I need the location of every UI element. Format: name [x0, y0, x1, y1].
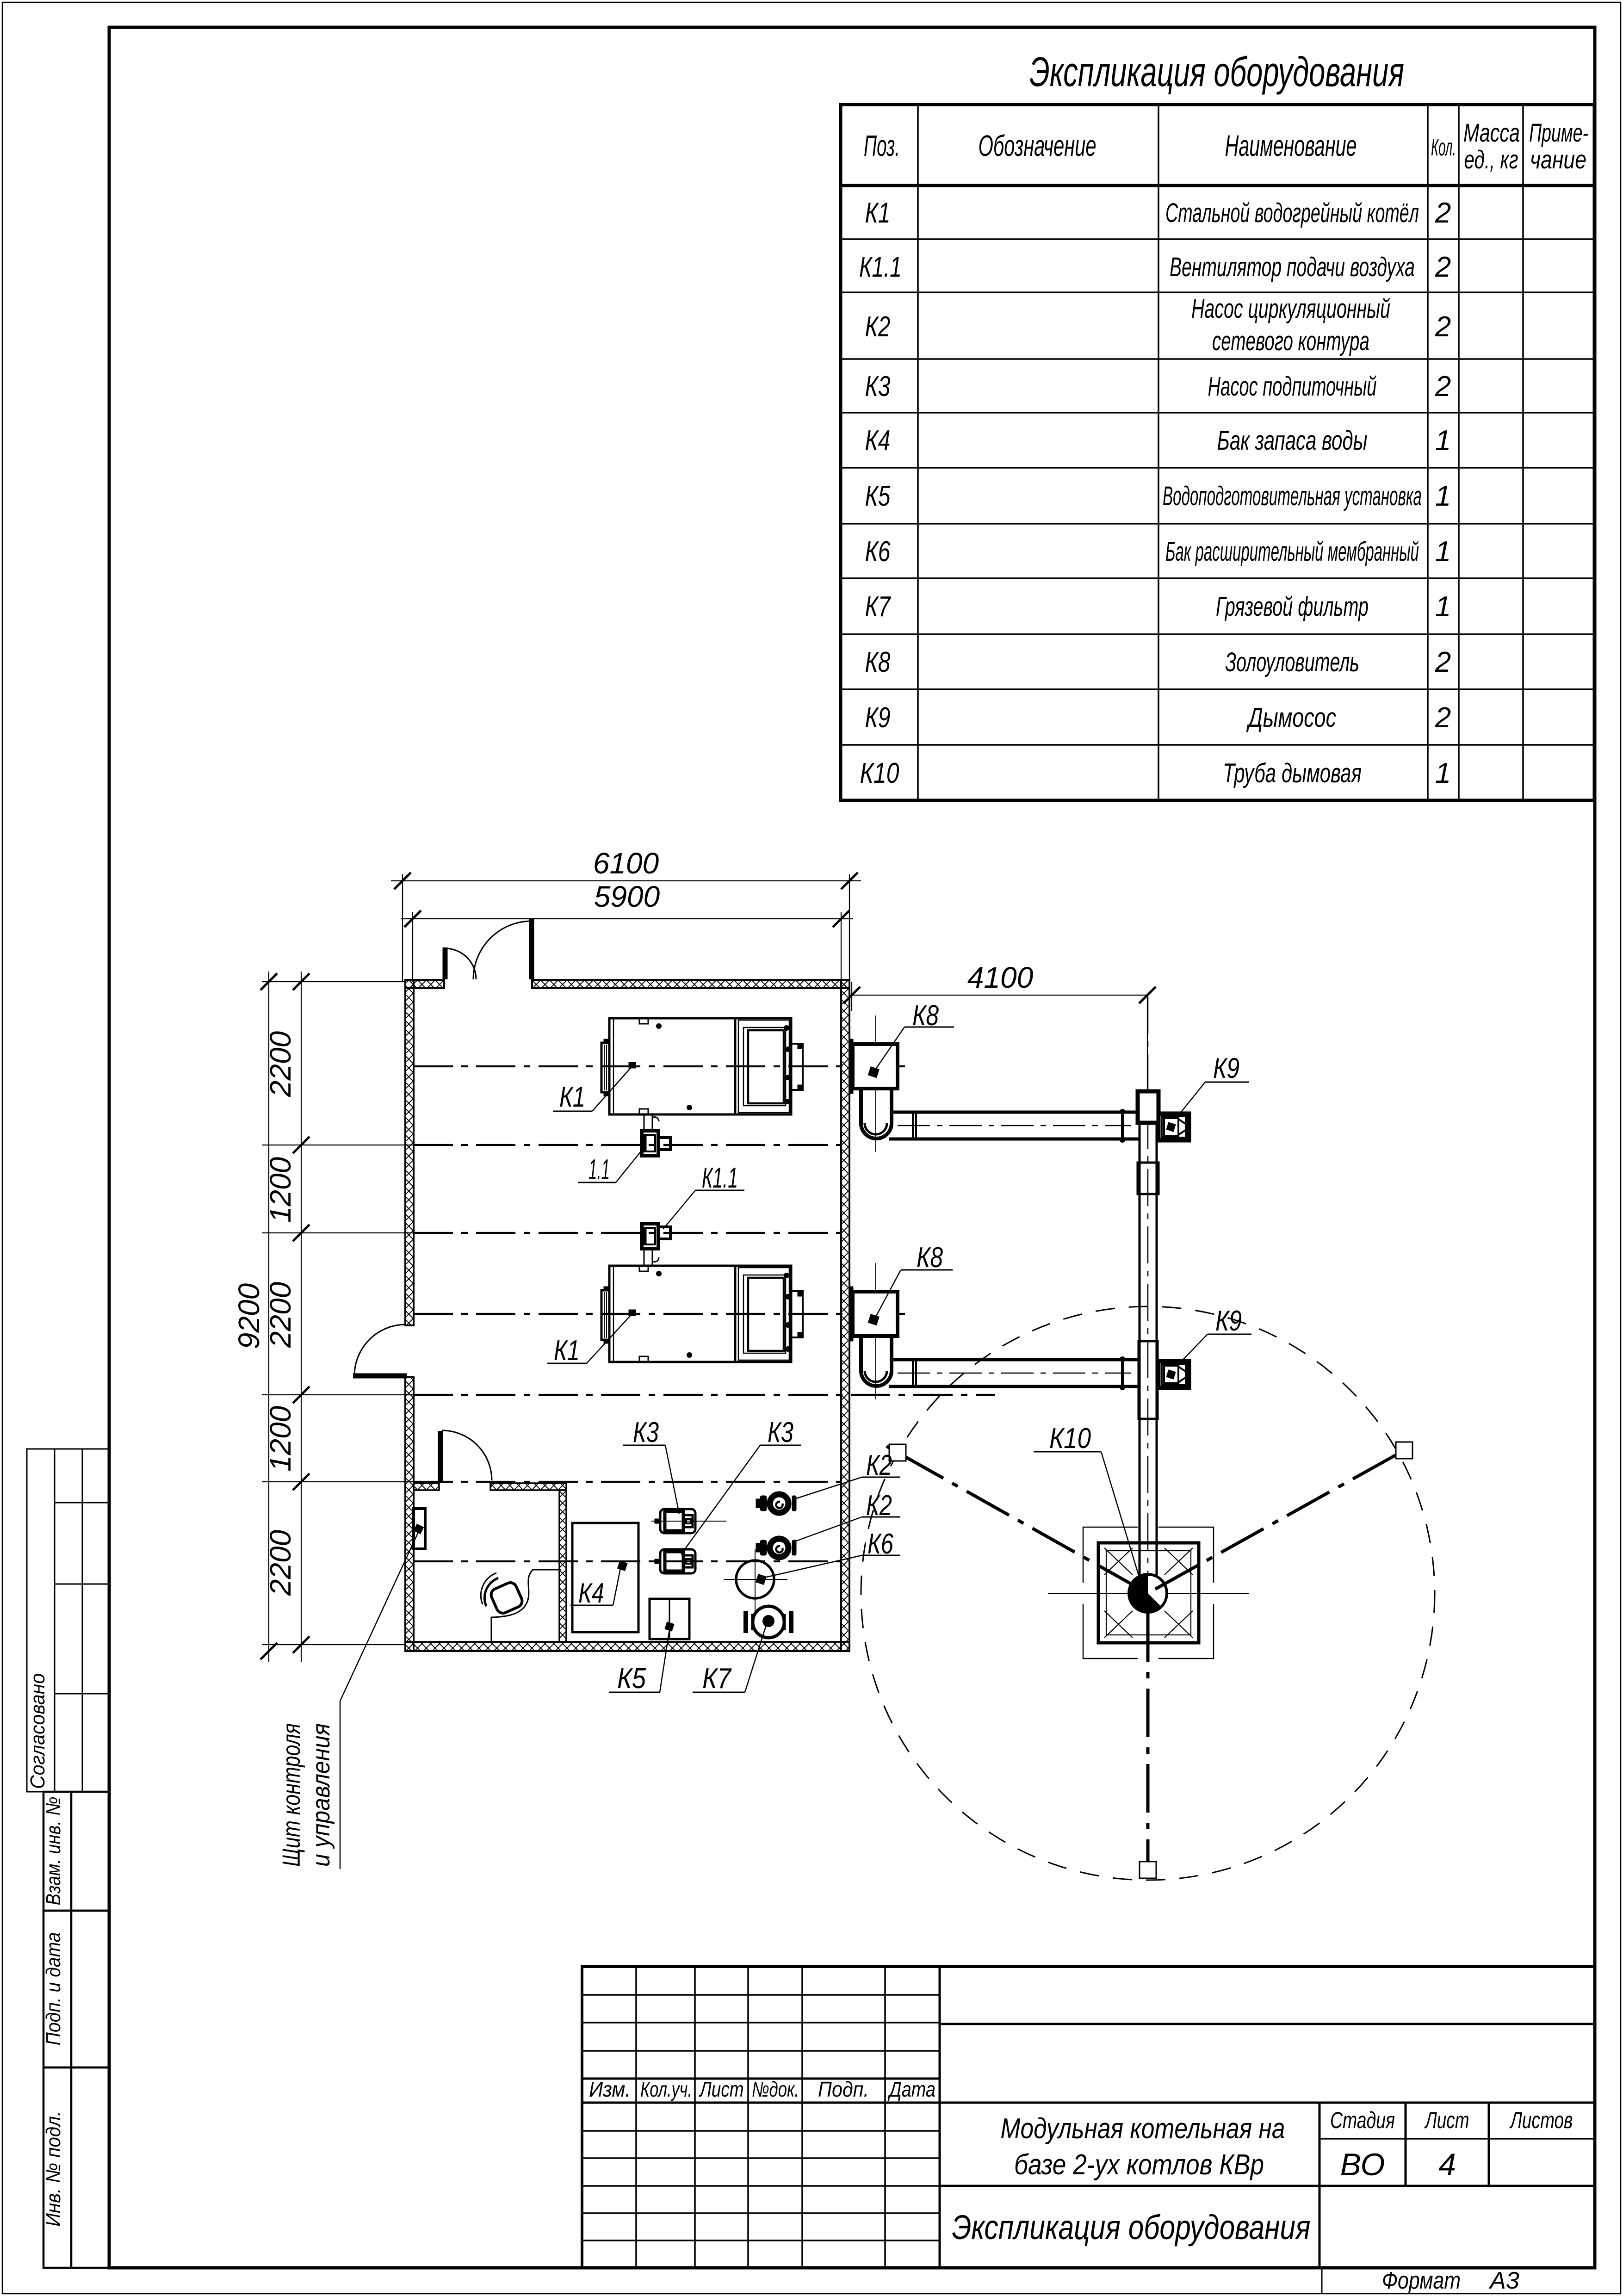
svg-text:К10: К10: [860, 757, 899, 789]
svg-text:Согласовано: Согласовано: [26, 1673, 49, 1789]
svg-text:Золоуловитель: Золоуловитель: [1225, 647, 1359, 677]
svg-text:Дымосос: Дымосос: [1246, 703, 1336, 733]
svg-text:2200: 2200: [264, 1529, 297, 1596]
svg-text:Приме-: Приме-: [1529, 118, 1588, 147]
svg-text:Труба дымовая: Труба дымовая: [1223, 758, 1362, 788]
svg-text:1: 1: [1435, 757, 1451, 789]
svg-text:К5: К5: [865, 480, 891, 512]
svg-text:К8: К8: [865, 646, 891, 678]
svg-text:К10: К10: [1049, 1423, 1091, 1454]
svg-text:К1: К1: [559, 1081, 585, 1113]
svg-text:К6: К6: [865, 536, 891, 568]
svg-text:Подп.: Подп.: [818, 2077, 869, 2101]
svg-text:К3: К3: [768, 1417, 793, 1448]
svg-text:2: 2: [1435, 702, 1451, 734]
svg-text:Дата: Дата: [887, 2077, 935, 2101]
svg-text:1.1: 1.1: [588, 1154, 610, 1186]
svg-text:9200: 9200: [232, 1283, 266, 1349]
svg-text:Водоподготовительная установка: Водоподготовительная установка: [1163, 481, 1422, 511]
svg-text:К2: К2: [865, 311, 891, 343]
svg-text:Поз.: Поз.: [864, 129, 900, 162]
svg-text:Стадия: Стадия: [1330, 2107, 1395, 2133]
svg-text:К1.1: К1.1: [702, 1162, 738, 1194]
svg-text:Модульная котельная на: Модульная котельная на: [1001, 2113, 1285, 2145]
svg-text:базе 2-ух котлов КВр: базе 2-ух котлов КВр: [1014, 2149, 1264, 2181]
svg-text:К4: К4: [578, 1578, 604, 1609]
svg-text:2: 2: [1435, 646, 1451, 678]
svg-text:Изм.: Изм.: [589, 2077, 631, 2101]
svg-text:К1.1: К1.1: [859, 251, 902, 283]
svg-text:Экспликация оборудования: Экспликация оборудования: [952, 2208, 1311, 2246]
svg-text:6100: 6100: [593, 847, 659, 880]
svg-text:Насос подпиточный: Насос подпиточный: [1208, 371, 1377, 402]
svg-text:К4: К4: [865, 425, 891, 457]
svg-text:№док.: №док.: [752, 2077, 799, 2101]
svg-text:К9: К9: [1215, 1305, 1242, 1337]
svg-text:К9: К9: [1213, 1052, 1239, 1084]
svg-text:К5: К5: [617, 1663, 646, 1695]
svg-text:К3: К3: [633, 1417, 659, 1448]
svg-text:Наименование: Наименование: [1225, 129, 1357, 162]
svg-text:К3: К3: [865, 371, 891, 402]
svg-text:Экспликация оборудования: Экспликация оборудования: [1029, 49, 1404, 95]
svg-text:2: 2: [1435, 311, 1451, 343]
svg-text:1: 1: [1435, 425, 1451, 457]
svg-text:ед., кг: ед., кг: [1464, 145, 1518, 174]
svg-text:1200: 1200: [264, 1157, 297, 1223]
svg-text:1200: 1200: [264, 1405, 297, 1472]
svg-text:2200: 2200: [264, 1281, 297, 1348]
svg-text:К7: К7: [702, 1663, 732, 1695]
svg-text:и управления: и управления: [307, 1723, 335, 1867]
svg-text:Вентилятор подачи воздуха: Вентилятор подачи воздуха: [1170, 252, 1415, 282]
svg-text:К7: К7: [865, 591, 892, 623]
svg-text:Лист: Лист: [699, 2077, 743, 2101]
svg-text:Стальной водогрейный котёл: Стальной водогрейный котёл: [1165, 198, 1419, 228]
svg-text:1: 1: [1435, 591, 1451, 623]
svg-text:1: 1: [1435, 480, 1451, 512]
svg-text:Щит контроля: Щит контроля: [278, 1723, 305, 1867]
svg-text:Грязевой фильтр: Грязевой фильтр: [1216, 592, 1369, 622]
svg-text:Формат: Формат: [1382, 2267, 1461, 2294]
svg-text:Обозначение: Обозначение: [979, 129, 1096, 162]
svg-text:чание: чание: [1530, 145, 1586, 174]
svg-text:К8: К8: [917, 1242, 943, 1274]
svg-text:Подп. и дата: Подп. и дата: [42, 1932, 65, 2046]
svg-text:К1: К1: [865, 197, 891, 229]
svg-text:Масса: Масса: [1463, 118, 1520, 147]
svg-text:Кол.уч.: Кол.уч.: [640, 2077, 692, 2101]
svg-text:А3: А3: [1488, 2267, 1519, 2294]
svg-text:2: 2: [1435, 197, 1451, 229]
svg-text:5900: 5900: [594, 880, 660, 913]
svg-text:Листов: Листов: [1509, 2107, 1573, 2133]
svg-text:2: 2: [1435, 371, 1451, 402]
svg-text:Бак расширительный мембранный: Бак расширительный мембранный: [1165, 537, 1419, 567]
svg-text:4: 4: [1438, 2147, 1456, 2182]
svg-text:2200: 2200: [264, 1031, 297, 1097]
svg-text:К1: К1: [554, 1335, 580, 1367]
svg-text:Бак запаса воды: Бак запаса воды: [1217, 426, 1368, 456]
svg-text:4100: 4100: [967, 961, 1034, 994]
svg-text:ВО: ВО: [1340, 2147, 1385, 2182]
svg-text:Взам. инв. №: Взам. инв. №: [42, 1797, 65, 1906]
svg-text:1: 1: [1435, 536, 1451, 568]
svg-text:Кол.: Кол.: [1431, 134, 1456, 161]
svg-text:сетевого контура: сетевого контура: [1212, 326, 1369, 356]
svg-text:Лист: Лист: [1424, 2107, 1469, 2133]
svg-text:К9: К9: [865, 702, 891, 734]
svg-text:2: 2: [1435, 251, 1451, 283]
svg-text:Инв. № подл.: Инв. № подл.: [42, 2111, 65, 2227]
svg-text:Насос циркуляционный: Насос циркуляционный: [1191, 294, 1390, 324]
